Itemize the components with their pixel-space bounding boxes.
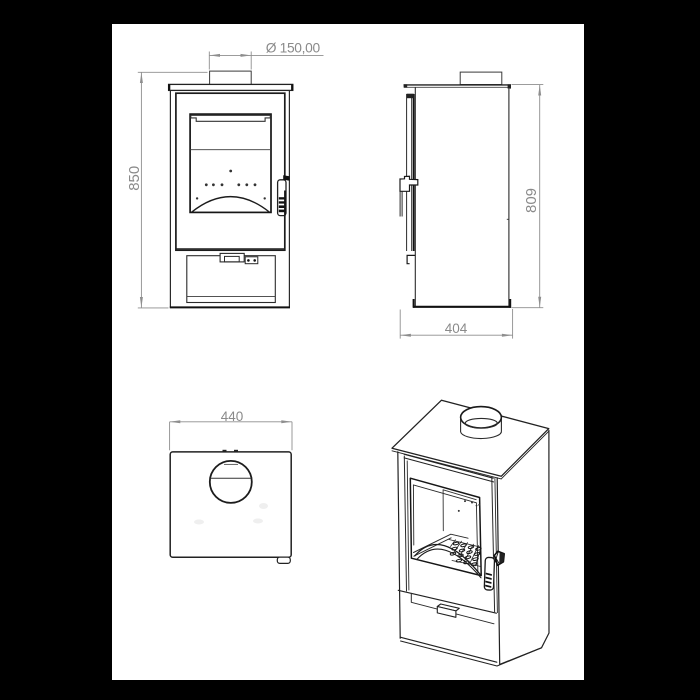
svg-text:Ø 150,00: Ø 150,00 [266,41,321,56]
svg-text:404: 404 [445,321,468,336]
svg-text:850: 850 [126,166,143,191]
svg-text:440: 440 [221,409,244,424]
svg-text:809: 809 [523,188,540,213]
